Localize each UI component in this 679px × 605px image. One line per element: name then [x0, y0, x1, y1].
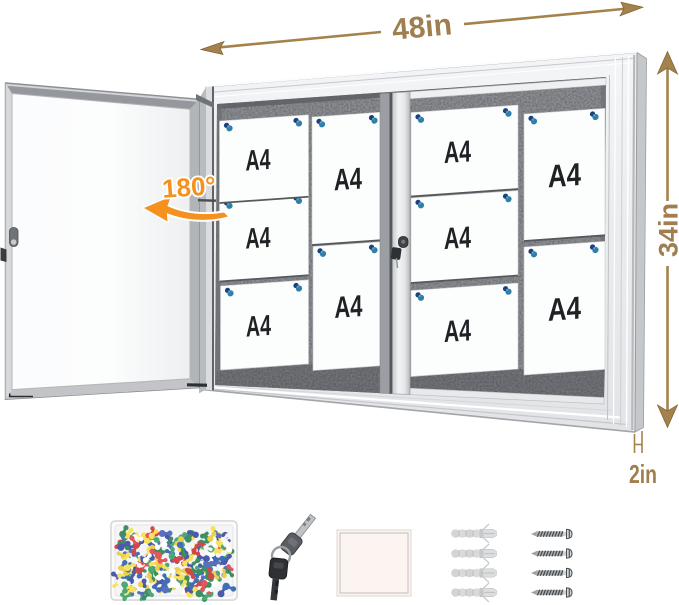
svg-text:A4: A4 — [246, 310, 271, 344]
svg-text:180°: 180° — [161, 170, 217, 204]
svg-text:48in: 48in — [391, 8, 454, 47]
svg-text:A4: A4 — [444, 313, 471, 349]
svg-text:A4: A4 — [548, 290, 581, 328]
svg-text:A4: A4 — [246, 222, 271, 256]
svg-text:A4: A4 — [246, 144, 271, 178]
svg-text:A4: A4 — [334, 162, 362, 198]
svg-text:A4: A4 — [444, 220, 471, 256]
svg-text:A4: A4 — [335, 289, 363, 325]
svg-text:2in: 2in — [629, 459, 657, 489]
svg-text:A4: A4 — [548, 156, 581, 194]
svg-text:34in: 34in — [654, 203, 679, 257]
svg-text:A4: A4 — [444, 134, 471, 170]
